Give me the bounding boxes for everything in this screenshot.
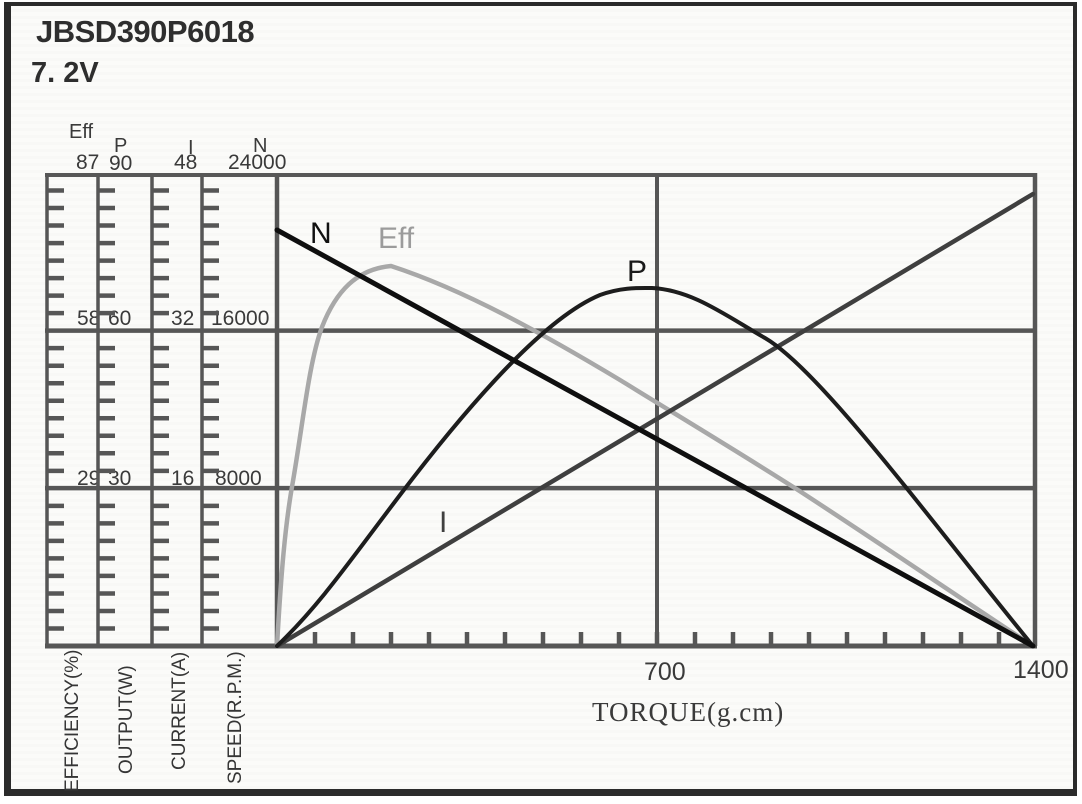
horizontal-gridlines [45,175,1037,646]
performance-chart [0,0,1082,804]
scanned-datasheet-chart: { "header": { "model": "JBSD390P6018", "… [0,0,1082,804]
vertical-gridlines [47,173,1035,648]
scale-tick-marks [47,191,219,629]
